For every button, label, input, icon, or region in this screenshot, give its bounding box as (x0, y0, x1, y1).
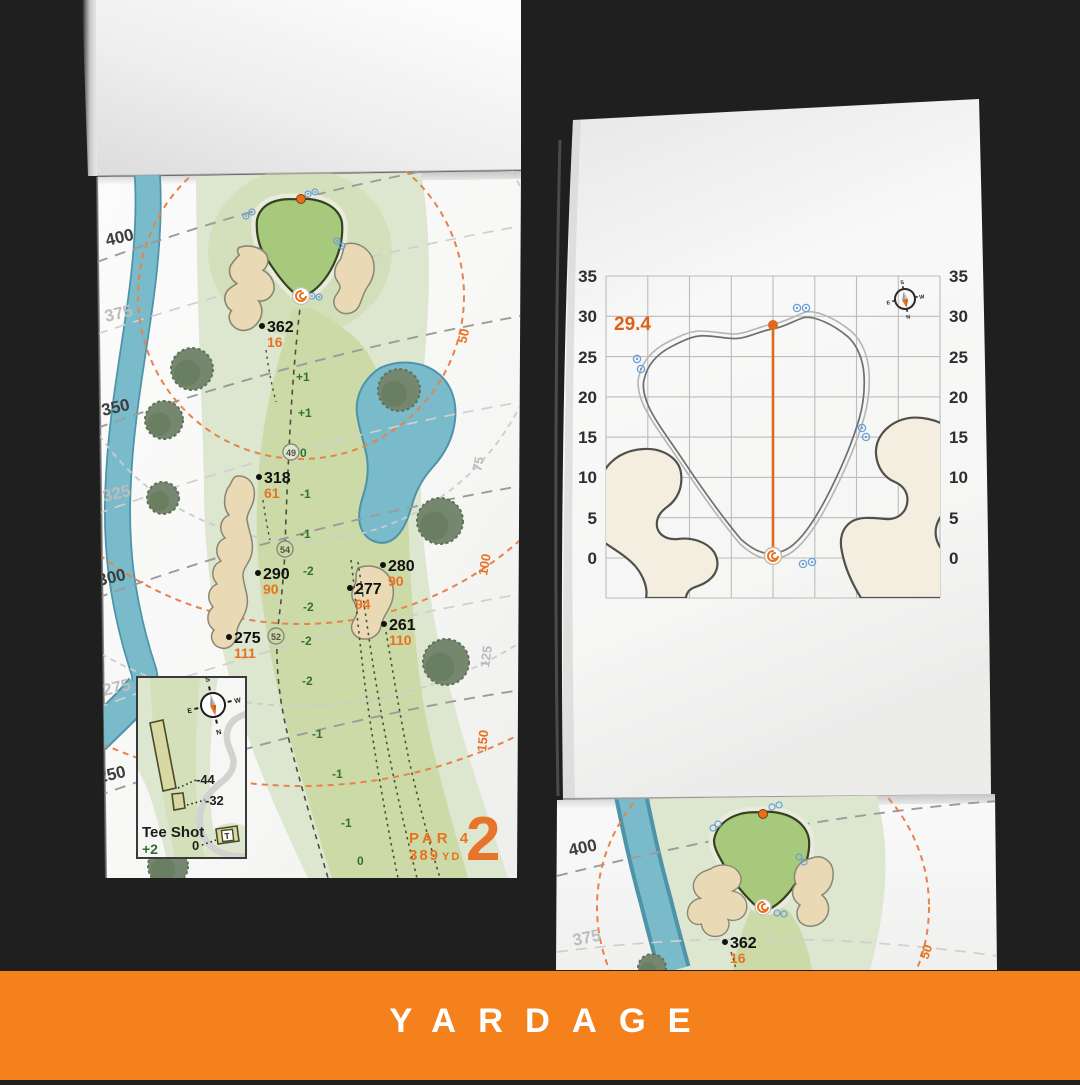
svg-text:110: 110 (389, 632, 412, 648)
svg-text:75: 75 (469, 455, 487, 472)
svg-text:10: 10 (578, 468, 597, 487)
svg-text:0: 0 (588, 549, 597, 568)
svg-text:-2: -2 (303, 600, 314, 614)
svg-text:0: 0 (949, 549, 958, 568)
svg-text:16: 16 (267, 334, 283, 350)
svg-text:-1: -1 (332, 767, 343, 781)
svg-text:15: 15 (578, 428, 597, 447)
svg-text:-1: -1 (300, 527, 311, 541)
svg-text:25: 25 (578, 348, 597, 367)
svg-text:15: 15 (949, 428, 968, 447)
svg-text:+1: +1 (296, 370, 310, 384)
svg-text:YARDAGE: YARDAGE (389, 1002, 712, 1040)
svg-text:-2: -2 (302, 674, 313, 688)
svg-text:54: 54 (280, 545, 290, 555)
svg-text:52: 52 (271, 632, 281, 642)
svg-text:5: 5 (949, 509, 958, 528)
svg-text:+1: +1 (298, 406, 312, 420)
svg-text:35: 35 (578, 267, 597, 286)
svg-text:29.4: 29.4 (614, 314, 651, 335)
svg-text:-1: -1 (312, 727, 323, 741)
svg-text:0: 0 (357, 854, 364, 868)
svg-text:25: 25 (949, 348, 968, 367)
svg-text:Tee Shot: Tee Shot (142, 824, 204, 841)
svg-text:20: 20 (578, 388, 597, 407)
svg-text:5: 5 (588, 509, 597, 528)
svg-text:-1: -1 (300, 487, 311, 501)
svg-text:0: 0 (300, 446, 307, 460)
svg-text:-2: -2 (303, 564, 314, 578)
svg-text:35: 35 (949, 267, 968, 286)
svg-text:-44: -44 (196, 772, 216, 787)
svg-text:30: 30 (578, 307, 597, 326)
svg-text:-1: -1 (341, 816, 352, 830)
svg-text:94: 94 (355, 596, 371, 612)
svg-text:61: 61 (264, 485, 280, 501)
svg-text:150: 150 (474, 729, 491, 752)
svg-text:20: 20 (949, 388, 968, 407)
svg-text:49: 49 (286, 448, 296, 458)
svg-text:-32: -32 (205, 793, 224, 808)
svg-text:PAR 4: PAR 4 (409, 830, 472, 847)
svg-text:10: 10 (949, 468, 968, 487)
svg-text:2: 2 (466, 805, 500, 874)
svg-text:90: 90 (388, 573, 404, 589)
svg-text:111: 111 (234, 645, 256, 661)
svg-text:+2: +2 (142, 841, 158, 857)
svg-text:16: 16 (730, 950, 746, 966)
svg-text:30: 30 (949, 307, 968, 326)
svg-text:125: 125 (477, 645, 495, 669)
svg-text:90: 90 (263, 581, 279, 597)
svg-text:-2: -2 (301, 634, 312, 648)
